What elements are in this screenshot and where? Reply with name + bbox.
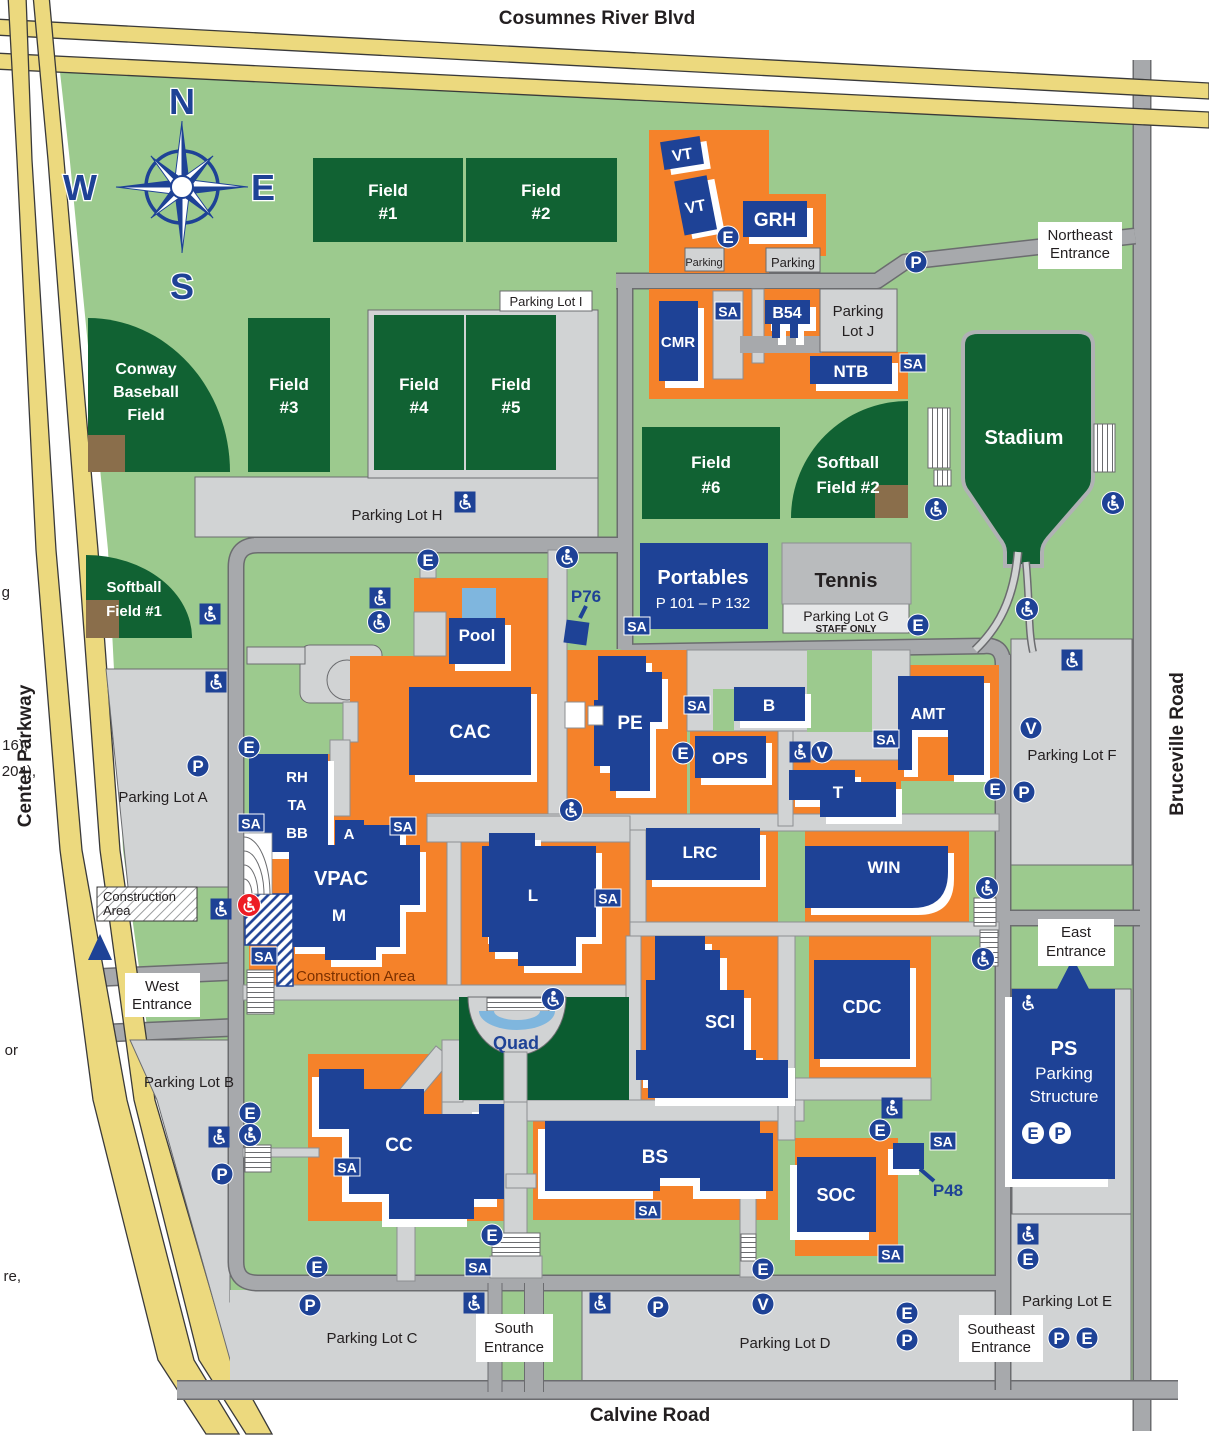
- svg-text:Structure: Structure: [1030, 1087, 1099, 1106]
- svg-text:#1: #1: [379, 204, 398, 223]
- svg-text:Entrance: Entrance: [971, 1339, 1031, 1356]
- svg-text:Southeast: Southeast: [967, 1321, 1035, 1338]
- svg-text:T: T: [833, 783, 844, 802]
- svg-text:South: South: [494, 1320, 533, 1337]
- svg-text:Entrance: Entrance: [484, 1339, 544, 1356]
- svg-text:Center Parkway: Center Parkway: [15, 684, 36, 827]
- svg-text:W: W: [63, 167, 97, 208]
- svg-text:#6: #6: [702, 478, 721, 497]
- svg-text:AMT: AMT: [911, 706, 946, 723]
- svg-text:or: or: [5, 1042, 18, 1059]
- svg-text:RH: RH: [286, 769, 308, 786]
- svg-text:Field: Field: [491, 375, 531, 394]
- svg-text:g: g: [2, 584, 10, 601]
- svg-text:S: S: [170, 266, 194, 307]
- svg-text:E: E: [251, 167, 275, 208]
- svg-text:Field: Field: [368, 181, 408, 200]
- svg-text:Field #1: Field #1: [106, 603, 162, 620]
- svg-text:SOC: SOC: [816, 1185, 855, 1205]
- svg-text:Tennis: Tennis: [815, 570, 878, 592]
- svg-text:Parking Lot B: Parking Lot B: [144, 1074, 234, 1091]
- svg-text:East: East: [1061, 924, 1092, 941]
- svg-text:Parking Lot D: Parking Lot D: [740, 1335, 831, 1352]
- svg-text:Parking Lot A: Parking Lot A: [118, 789, 207, 806]
- svg-text:Northeast: Northeast: [1047, 227, 1113, 244]
- svg-text:Parking Lot F: Parking Lot F: [1027, 747, 1116, 764]
- svg-text:BS: BS: [642, 1147, 668, 1168]
- svg-text:PE: PE: [617, 713, 642, 734]
- svg-text:VPAC: VPAC: [314, 868, 368, 890]
- svg-text:NTB: NTB: [834, 362, 869, 381]
- svg-text:A: A: [344, 826, 355, 843]
- svg-text:Conway: Conway: [115, 361, 176, 378]
- svg-text:M: M: [332, 906, 346, 925]
- svg-text:Field: Field: [691, 453, 731, 472]
- svg-text:Construction Area: Construction Area: [296, 968, 416, 985]
- svg-text:P48: P48: [933, 1181, 963, 1200]
- svg-text:Parking Lot E: Parking Lot E: [1022, 1293, 1112, 1310]
- svg-text:#5: #5: [502, 398, 521, 417]
- svg-text:WIN: WIN: [867, 858, 900, 877]
- svg-text:PS: PS: [1051, 1038, 1078, 1060]
- svg-text:Entrance: Entrance: [1050, 245, 1110, 262]
- svg-text:Softball: Softball: [817, 453, 879, 472]
- svg-text:Parking Lot I: Parking Lot I: [510, 294, 583, 309]
- svg-text:Parking: Parking: [1035, 1064, 1093, 1083]
- svg-text:CC: CC: [385, 1135, 413, 1156]
- svg-text:VT: VT: [671, 145, 694, 165]
- svg-text:#4: #4: [410, 398, 429, 417]
- svg-text:Field: Field: [269, 375, 309, 394]
- svg-text:Entrance: Entrance: [1046, 943, 1106, 960]
- svg-text:GRH: GRH: [754, 210, 796, 231]
- svg-text:Cosumnes River Blvd: Cosumnes River Blvd: [499, 8, 695, 29]
- svg-text:Baseball: Baseball: [113, 384, 179, 401]
- svg-text:Parking: Parking: [771, 255, 815, 270]
- svg-text:16),: 16),: [2, 737, 28, 754]
- svg-text:Stadium: Stadium: [985, 427, 1064, 449]
- svg-text:Entrance: Entrance: [132, 996, 192, 1013]
- svg-text:Construction: Construction: [103, 889, 176, 904]
- svg-text:Field: Field: [399, 375, 439, 394]
- svg-text:Field: Field: [521, 181, 561, 200]
- svg-text:CDC: CDC: [843, 997, 882, 1017]
- svg-text:re,: re,: [3, 1268, 21, 1285]
- svg-text:Parking Lot H: Parking Lot H: [352, 507, 443, 524]
- svg-text:SCI: SCI: [705, 1012, 735, 1032]
- svg-text:L: L: [528, 886, 538, 905]
- svg-text:Softball: Softball: [107, 579, 162, 596]
- svg-text:STAFF ONLY: STAFF ONLY: [815, 624, 876, 635]
- svg-text:B54: B54: [772, 305, 801, 322]
- svg-text:OPS: OPS: [712, 749, 748, 768]
- svg-text:West: West: [145, 978, 180, 995]
- svg-text:Area: Area: [103, 903, 131, 918]
- svg-text:BB: BB: [286, 825, 308, 842]
- svg-text:#3: #3: [280, 398, 299, 417]
- svg-text:Field: Field: [127, 407, 164, 424]
- svg-text:P76: P76: [571, 587, 601, 606]
- svg-text:Parking Lot G: Parking Lot G: [803, 608, 889, 624]
- svg-text:Parking Lot C: Parking Lot C: [327, 1330, 418, 1347]
- svg-text:#2: #2: [532, 204, 551, 223]
- svg-text:TA: TA: [288, 797, 307, 814]
- svg-text:Parking: Parking: [833, 303, 884, 320]
- svg-text:B: B: [763, 696, 775, 715]
- svg-text:N: N: [169, 81, 195, 122]
- svg-text:Parking: Parking: [685, 257, 722, 269]
- svg-text:Bruceville Road: Bruceville Road: [1167, 672, 1188, 816]
- svg-text:Portables: Portables: [657, 567, 748, 589]
- svg-text:LRC: LRC: [683, 843, 718, 862]
- svg-text:Quad: Quad: [493, 1033, 539, 1053]
- svg-text:Pool: Pool: [459, 626, 496, 645]
- svg-text:Field #2: Field #2: [816, 478, 879, 497]
- svg-text:204),: 204),: [2, 763, 36, 780]
- svg-text:CAC: CAC: [449, 722, 490, 743]
- svg-text:P 101 – P 132: P 101 – P 132: [656, 595, 751, 612]
- svg-text:Lot J: Lot J: [842, 323, 875, 340]
- svg-text:Calvine Road: Calvine Road: [590, 1405, 710, 1426]
- svg-text:CMR: CMR: [661, 334, 695, 351]
